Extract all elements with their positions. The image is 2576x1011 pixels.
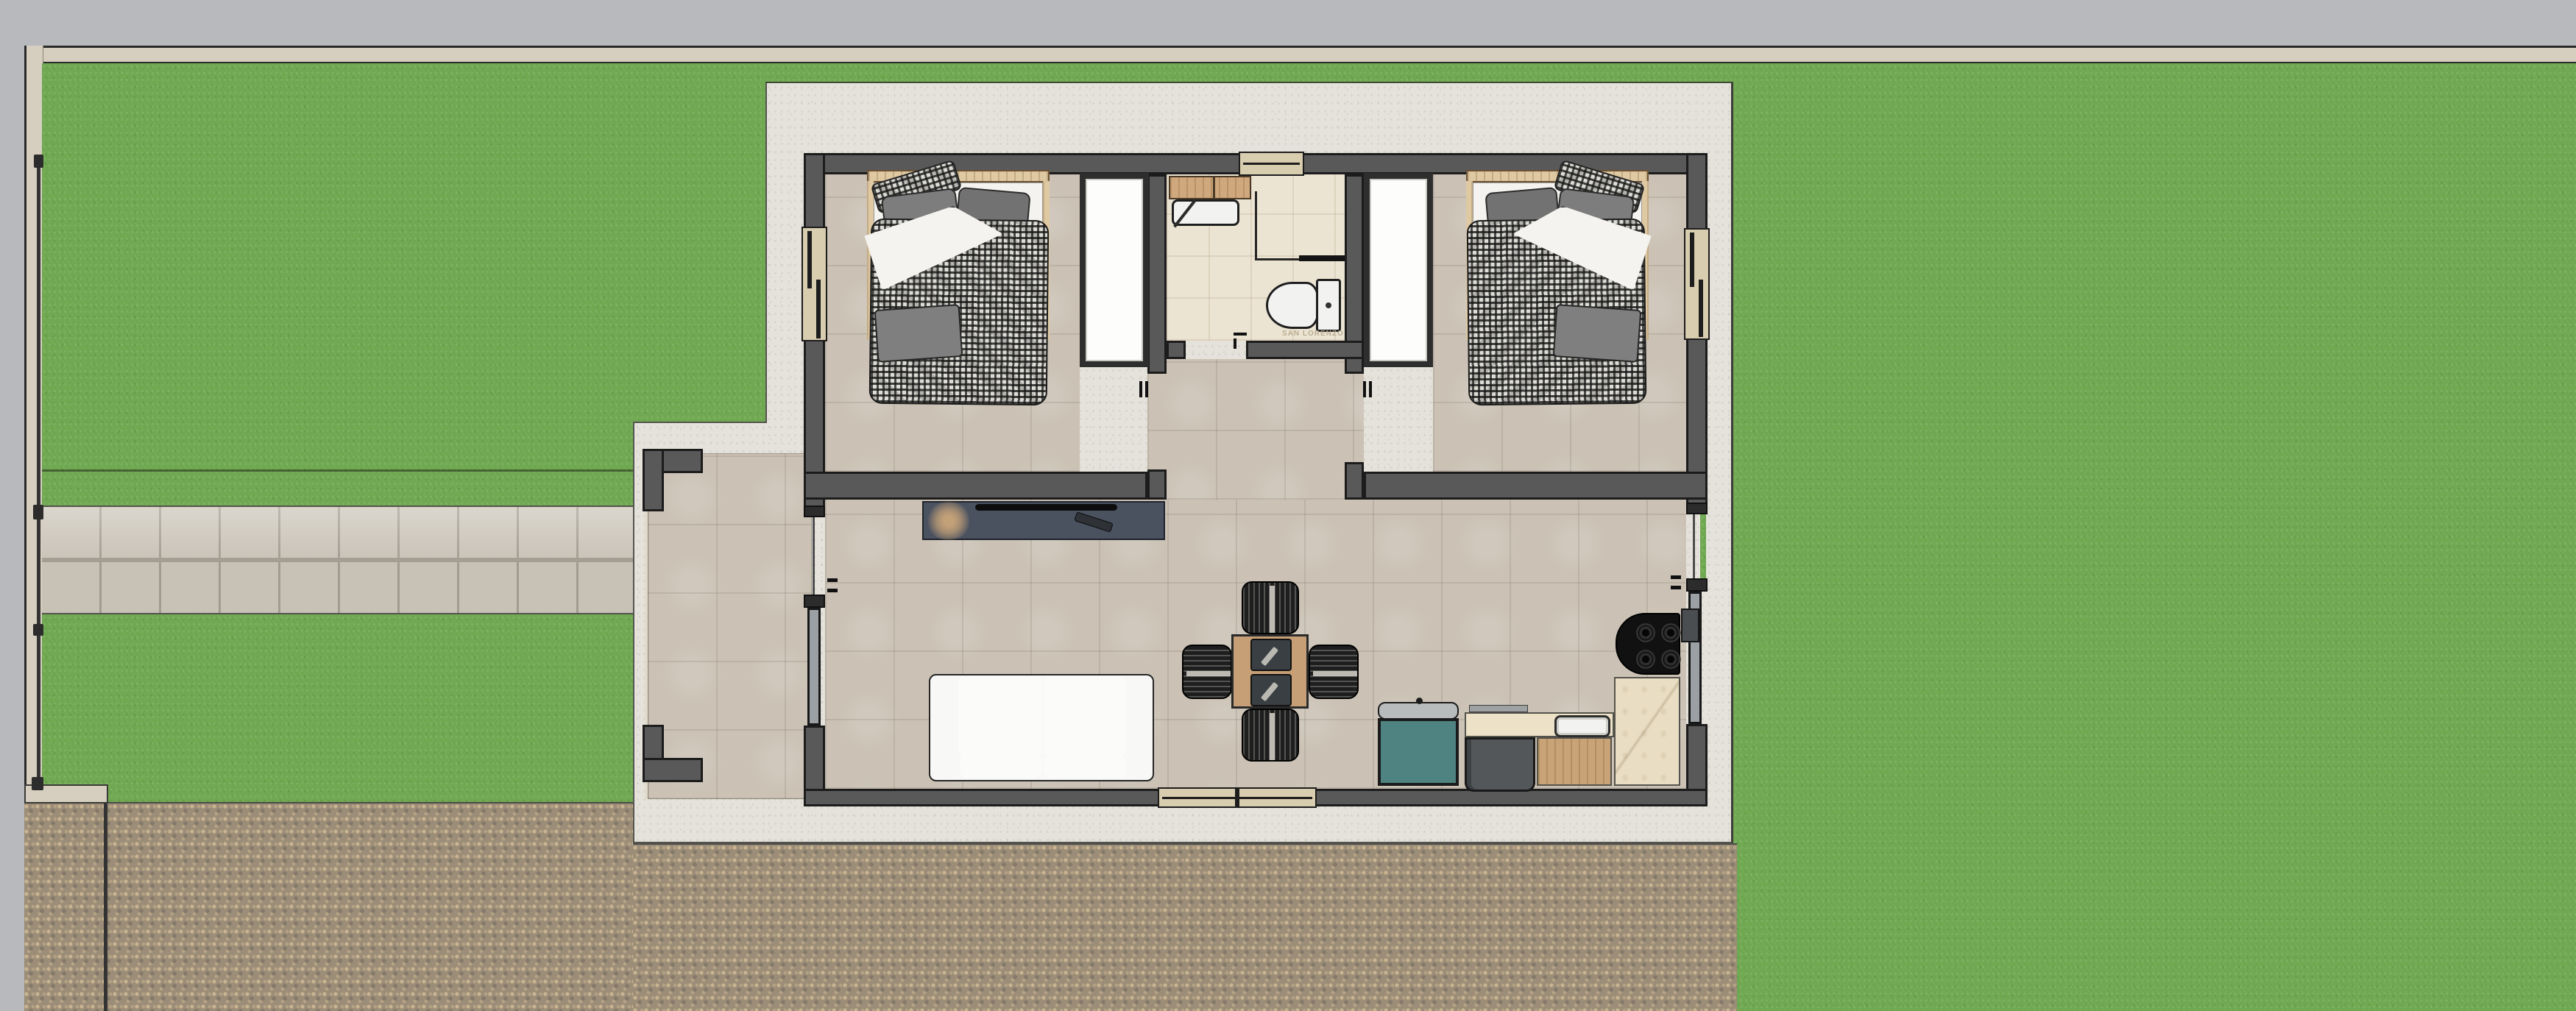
sofa-seat <box>958 677 1042 756</box>
dining-chair-north <box>1242 581 1299 634</box>
patio-door-frame-cap <box>804 595 825 608</box>
placemat <box>1250 674 1292 706</box>
door-jamb-bedroom-left <box>1145 381 1148 397</box>
vanity-divider <box>1213 176 1215 199</box>
living-room-window <box>1158 787 1317 808</box>
burner <box>1660 622 1682 644</box>
wall-divider-left <box>804 472 1147 500</box>
lawn-top-band <box>765 63 1733 83</box>
kitchen-sink <box>1554 715 1610 737</box>
door-jamb-bathroom <box>1234 338 1236 349</box>
cutlery <box>1261 647 1278 667</box>
lawn-seam-line <box>42 469 633 472</box>
toilet-flush-button <box>1326 302 1331 308</box>
window-sash <box>1699 280 1703 337</box>
fence-line-drive <box>104 804 107 1011</box>
cooktop <box>1616 613 1680 675</box>
burner <box>1660 648 1682 670</box>
door-jamb-bedroom-right <box>1369 381 1372 397</box>
wall-bathroom-right-corner <box>1345 462 1364 500</box>
sofa-back-cushion <box>1044 755 1126 778</box>
plant <box>926 502 972 540</box>
bathroom-window <box>1239 152 1304 176</box>
shower-screen-bar <box>1299 255 1345 261</box>
wall-bathroom-bottom-a <box>1167 341 1186 359</box>
window-sash <box>807 231 812 288</box>
patio-floor <box>645 453 812 799</box>
kitchen-cart-lid <box>1378 702 1459 720</box>
dining-chair-south <box>1242 709 1299 762</box>
kitchen-cart-knob <box>1416 698 1423 704</box>
dining-chair-east <box>1309 645 1359 699</box>
vanity-basin <box>1172 199 1239 226</box>
bed-right <box>1466 170 1649 413</box>
wall-bathroom-left-corner <box>1147 469 1167 500</box>
bed-throw <box>874 304 963 363</box>
garden-door-frame-cap <box>1686 503 1708 514</box>
fence-post <box>34 155 43 168</box>
burner <box>1635 622 1657 644</box>
fence-post <box>32 777 43 790</box>
tv-screen <box>975 504 1117 511</box>
bedroom-left-window <box>802 227 827 341</box>
cutlery <box>1261 682 1278 702</box>
burner <box>1635 648 1657 670</box>
counter-ledge <box>1469 705 1528 712</box>
garden-door-frame-cap <box>1686 578 1708 592</box>
patio-door-frame-cap <box>804 505 825 517</box>
bed-throw <box>1553 304 1642 363</box>
fence-line <box>37 156 40 787</box>
garden-door-handle <box>1671 586 1681 589</box>
window-mullion <box>1235 789 1239 806</box>
site-plan-scene: SAN LORENZO <box>0 0 2576 1011</box>
wall-bathroom-bottom-b <box>1246 341 1364 359</box>
marble-counter <box>1614 677 1680 786</box>
sofa-seat <box>1044 677 1126 756</box>
cobblestone-drive-main <box>633 843 1737 1011</box>
garden-door-track <box>1693 514 1695 579</box>
garden-door-opening <box>1700 514 1706 579</box>
window-sash <box>816 280 821 338</box>
cobblestone-drive-left <box>24 802 633 1011</box>
patio-pillar-top <box>643 449 664 511</box>
fence-post <box>33 624 43 636</box>
kitchen-cart <box>1378 718 1459 786</box>
fence-post <box>33 505 43 519</box>
cutting-board-counter <box>1537 737 1612 786</box>
tile-brand-watermark: SAN LORENZO <box>1282 330 1344 338</box>
wardrobe-bedroom-right <box>1364 173 1433 367</box>
lawn-right <box>1733 63 2576 1011</box>
window-sash <box>1690 233 1694 287</box>
patio-door-handle <box>827 578 838 582</box>
patio-door-track <box>813 517 815 597</box>
door-jamb-bedroom-left <box>1139 381 1142 397</box>
apron-edge-line <box>765 83 767 422</box>
paved-walkway <box>42 505 633 614</box>
garden-door-handle <box>1671 575 1681 579</box>
sofa <box>929 674 1154 781</box>
shower-screen <box>1255 191 1257 260</box>
dining-chair-west <box>1182 645 1232 699</box>
wall-divider-right <box>1364 472 1708 500</box>
placemat <box>1250 639 1292 671</box>
patio-pillar-bottom <box>643 758 703 782</box>
hallway-floor <box>1147 359 1364 500</box>
sofa-back-cushion <box>960 755 1042 778</box>
lawn-left-lower <box>42 614 633 804</box>
door-jamb-bedroom-right <box>1363 381 1366 397</box>
door-jamb-bathroom <box>1234 333 1247 336</box>
wall-bathroom-left <box>1147 174 1167 374</box>
vanity-counter <box>1169 176 1251 199</box>
boundary-strip-top <box>24 46 2576 63</box>
wall-cabinet <box>1681 609 1699 642</box>
patio-door-handle <box>827 589 838 592</box>
oven-appliance <box>1465 737 1535 792</box>
bed-left <box>867 170 1050 413</box>
bedroom-right-window <box>1684 228 1710 340</box>
toilet-bowl <box>1266 282 1319 329</box>
patio-door-glass <box>807 608 821 726</box>
wardrobe-bedroom-left <box>1080 173 1149 367</box>
